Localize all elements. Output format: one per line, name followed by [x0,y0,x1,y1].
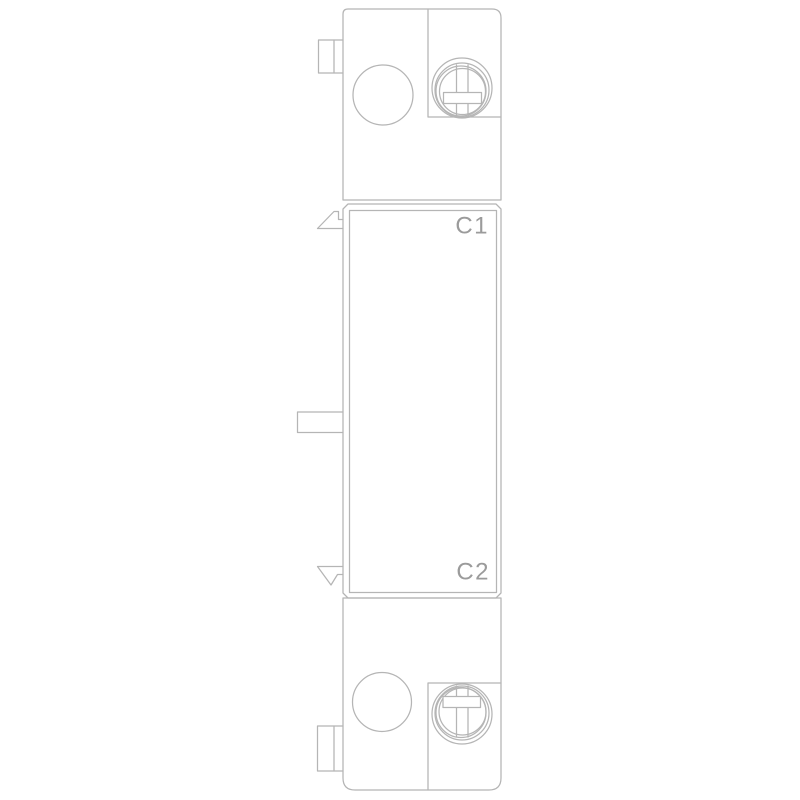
mounting-tab-top [319,40,344,73]
terminal-label-c2: C2 [456,559,490,586]
screw-slot-icon [444,93,482,104]
mounting-tab-bottom [318,726,344,771]
screw-head-icon [440,69,486,115]
tab-outline [319,40,344,73]
drawing-canvas: C1 C2 [0,0,800,800]
snap-clip-top [318,212,344,229]
screw-terminal-bottom [432,684,492,744]
mounting-hole-top [353,65,413,125]
screw-bevel-ring-icon [435,686,489,740]
top-block-outline [343,9,501,200]
screw-terminal-top [432,58,492,118]
terminal-labels: C1 C2 [455,213,490,586]
bottom-terminal-block [318,598,502,790]
mounting-tab-middle [298,412,344,433]
body-outline-inner [350,211,497,593]
line-art [298,9,502,790]
screw-slot-icon [443,697,481,708]
top-terminal-block [319,9,502,200]
body-outline-outer [343,204,501,598]
tab-outline [318,726,344,771]
screw-head-icon [439,688,486,735]
snap-clip-bottom [318,567,344,586]
product-line-drawing: C1 C2 [0,0,800,800]
screw-outer-ring-icon [432,58,492,118]
coil-body [298,204,502,598]
mounting-hole-bottom [353,673,412,732]
terminal-label-c1: C1 [455,213,489,240]
